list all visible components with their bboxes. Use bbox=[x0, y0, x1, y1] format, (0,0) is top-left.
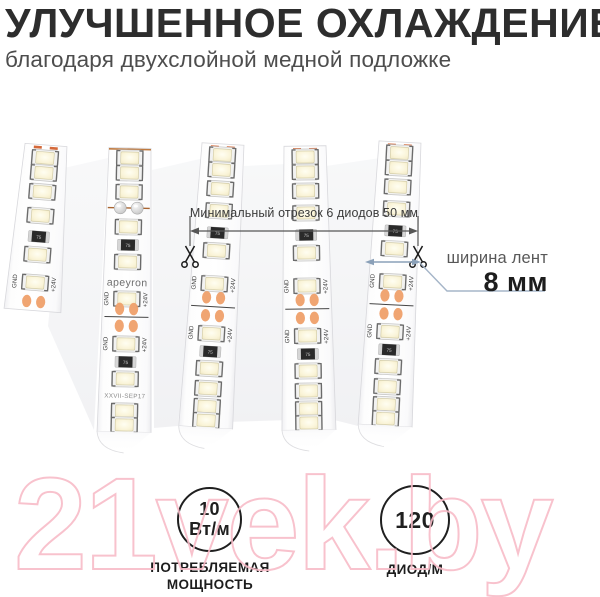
resistor bbox=[117, 239, 138, 250]
led-strip-column-4 bbox=[278, 146, 336, 453]
led bbox=[203, 242, 231, 260]
led bbox=[292, 149, 319, 165]
density-badge-value: 120 bbox=[395, 507, 435, 534]
led bbox=[195, 360, 223, 378]
width-note: ширина лент 8 мм bbox=[388, 249, 548, 298]
led-strip-scene: GND +24V 75 bbox=[0, 130, 600, 470]
density-badge: 120 bbox=[380, 485, 450, 555]
led bbox=[385, 159, 413, 176]
density-badge-label: ДИОД/М bbox=[315, 561, 515, 578]
resistor bbox=[207, 227, 229, 239]
resistor bbox=[115, 356, 136, 367]
led bbox=[295, 415, 322, 431]
resistor bbox=[297, 348, 318, 359]
resistor bbox=[199, 345, 221, 357]
led bbox=[192, 412, 220, 430]
led bbox=[194, 380, 222, 398]
cut-line bbox=[285, 309, 329, 310]
fold-tail bbox=[177, 426, 232, 451]
led bbox=[116, 165, 143, 182]
page-subtitle: благодаря двухслойной медной подложке bbox=[5, 47, 565, 73]
led bbox=[206, 180, 234, 198]
led bbox=[373, 378, 401, 395]
led-labeled bbox=[102, 335, 148, 352]
led-labeled bbox=[284, 328, 330, 345]
led bbox=[116, 150, 143, 167]
power-badge-label-line1: ПОТРЕБЛЯЕМАЯ bbox=[110, 559, 310, 576]
led bbox=[207, 161, 235, 179]
brand-logo: apeyron bbox=[107, 277, 148, 290]
led bbox=[292, 164, 319, 180]
led bbox=[295, 383, 322, 399]
led bbox=[386, 144, 414, 161]
led bbox=[111, 371, 138, 388]
led bbox=[111, 417, 138, 434]
led-labeled bbox=[283, 278, 329, 295]
power-badge-label-line2: МОЩНОСТЬ bbox=[110, 576, 310, 593]
led-labeled bbox=[103, 290, 149, 307]
product-infographic: УЛУЧШЕННОЕ ОХЛАЖДЕНИЕ благодаря двухслой… bbox=[0, 0, 600, 597]
led bbox=[372, 410, 400, 427]
led bbox=[115, 184, 142, 201]
fold-tail bbox=[97, 431, 151, 454]
led bbox=[30, 164, 58, 182]
power-badge-value: 10 bbox=[199, 500, 219, 520]
led bbox=[26, 207, 54, 225]
power-badge: 10 Вт/м bbox=[177, 487, 242, 552]
led bbox=[114, 254, 141, 271]
power-badge-label: ПОТРЕБЛЯЕМАЯ МОЩНОСТЬ bbox=[110, 559, 310, 593]
led bbox=[28, 183, 56, 201]
led bbox=[295, 363, 322, 379]
power-badge-unit: Вт/м bbox=[189, 520, 230, 540]
fold-tail bbox=[357, 424, 412, 449]
width-note-value: 8 мм bbox=[388, 267, 548, 297]
led bbox=[384, 178, 412, 195]
led bbox=[292, 183, 319, 199]
resistor bbox=[28, 230, 50, 243]
segment-note: Минимальный отрезок 6 диодов 50 мм bbox=[178, 206, 430, 220]
led bbox=[293, 245, 320, 261]
led bbox=[115, 219, 142, 236]
width-note-label: ширина лент bbox=[388, 249, 548, 267]
batch-marking: XXVII-SEP17 bbox=[104, 393, 145, 401]
page-title: УЛУЧШЕННОЕ ОХЛАЖДЕНИЕ bbox=[5, 0, 597, 47]
density-badge-label-line1: ДИОД/М bbox=[315, 561, 515, 578]
led bbox=[374, 358, 402, 375]
led bbox=[23, 246, 51, 264]
fold-tail bbox=[282, 430, 336, 453]
resistor bbox=[378, 344, 400, 356]
